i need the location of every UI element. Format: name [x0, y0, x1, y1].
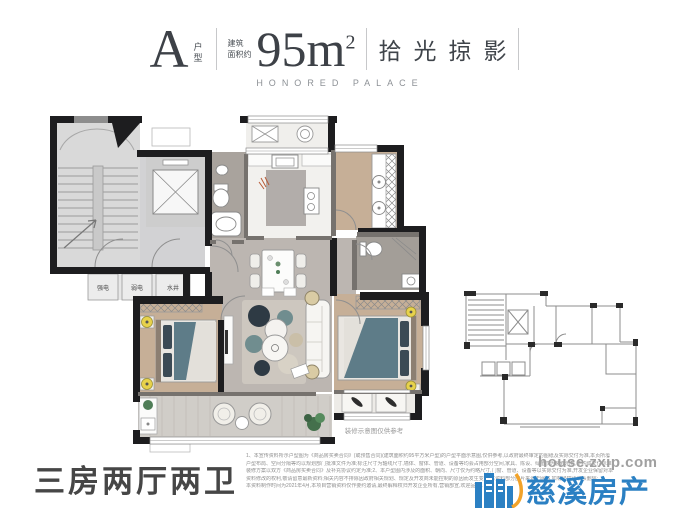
- area-value: 95m2: [257, 24, 356, 74]
- watermark-site-name: 慈溪房产网: [526, 467, 680, 510]
- utility-label-strong-power: 强电: [97, 284, 109, 292]
- site-watermark: house.zxip.com 慈溪房产网: [474, 452, 680, 508]
- project-subtitle: HONORED PALACE: [0, 78, 680, 88]
- unit-type-label: 户型: [192, 42, 205, 64]
- area-prefix-line2: 面积约: [228, 49, 252, 60]
- area-superscript: 2: [345, 31, 355, 53]
- elevator: [146, 128, 205, 227]
- unit-letter: A: [150, 22, 189, 76]
- utility-label-water-shaft: 水井: [167, 284, 179, 292]
- bedroom3-vanity: [372, 154, 396, 228]
- key-plan-wall-chunks: [464, 291, 638, 426]
- header-divider: [518, 28, 519, 70]
- buildings-logo-icon: [474, 468, 526, 508]
- header-divider: [366, 28, 367, 70]
- header-divider: [216, 28, 217, 70]
- header: A 户型 建筑 面积约 95m2 拾光掠影: [0, 22, 680, 76]
- utility-label-weak-power: 弱电: [131, 284, 143, 292]
- apartment-type-title: 三房两厅两卫: [34, 456, 238, 501]
- project-tagline: 拾光掠影: [378, 32, 518, 66]
- main-floorplan: 强电 弱电 水井: [50, 116, 429, 452]
- floorplan-caption: 装修示意图仅供参考: [345, 426, 404, 435]
- floorplan-flyer: 强电 弱电 水井: [0, 0, 680, 510]
- area-prefix: 建筑 面积约: [228, 38, 252, 60]
- key-floorplan: [464, 291, 638, 427]
- area-prefix-line1: 建筑: [228, 38, 252, 49]
